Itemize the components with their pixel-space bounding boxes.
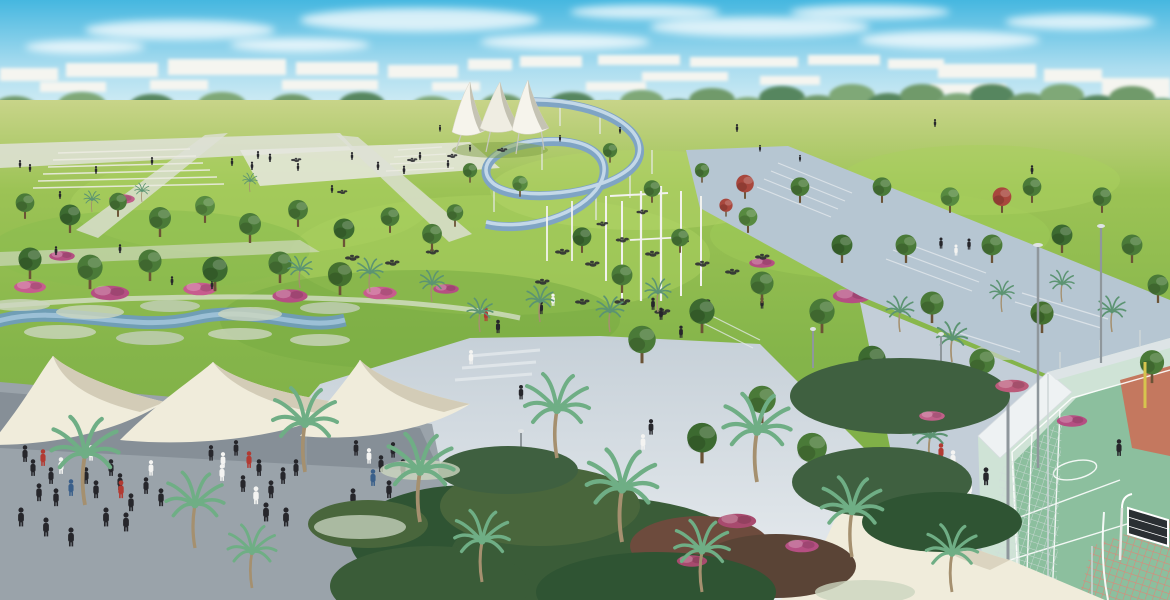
lamp-head	[810, 327, 816, 331]
foreground-flower-shrub	[995, 380, 1029, 393]
distant-building	[598, 55, 680, 65]
cloud	[300, 8, 540, 32]
cloud	[230, 38, 370, 52]
stream	[0, 314, 345, 323]
flower-shrub	[14, 281, 46, 293]
flower-shrub	[363, 287, 397, 300]
foreground-flower-shrub	[785, 540, 819, 553]
cloud	[790, 5, 950, 19]
distant-building	[0, 68, 58, 81]
grass-tuft	[24, 325, 96, 339]
distant-building	[150, 80, 208, 90]
foreground-flower-shrub	[1057, 415, 1087, 426]
lamp-head	[1097, 224, 1105, 228]
foreground-flower-shrub	[919, 411, 945, 421]
cloud	[1005, 14, 1155, 30]
distant-building	[168, 59, 286, 75]
grass-tuft	[300, 302, 360, 314]
distant-building	[888, 59, 944, 69]
distant-building	[388, 65, 458, 78]
distant-building	[1044, 69, 1102, 82]
distant-building	[642, 72, 728, 81]
lamp-head	[938, 332, 944, 336]
distant-building	[66, 63, 158, 77]
cloud	[650, 17, 870, 37]
park-rendering-canvas	[0, 0, 1170, 600]
distant-building	[468, 59, 512, 70]
distant-building	[40, 82, 106, 92]
grass-tuft	[56, 305, 124, 319]
distant-building	[690, 57, 798, 67]
flower-shrub	[91, 286, 129, 300]
foreground-flower-shrub	[718, 514, 756, 528]
grass-tuft	[218, 307, 282, 321]
distant-building	[432, 82, 480, 91]
foreground-grass-tuft	[314, 515, 406, 539]
park-rendering-image	[0, 0, 1170, 600]
distant-building	[808, 55, 880, 65]
cloud	[25, 40, 145, 54]
distant-building	[282, 80, 378, 90]
flower-shrub	[272, 289, 307, 302]
distant-building	[520, 56, 582, 67]
lamp-head	[1033, 243, 1043, 247]
distant-building	[586, 82, 646, 91]
cloud	[860, 31, 1040, 49]
flower-shrub	[433, 284, 459, 294]
grass-tuft	[116, 331, 184, 345]
distant-building	[760, 76, 820, 85]
cloud	[570, 5, 720, 19]
cloud	[480, 34, 650, 50]
grass-tuft	[208, 328, 272, 340]
cloud	[85, 20, 275, 40]
grass-tuft	[140, 300, 200, 312]
grass-tuft	[290, 334, 350, 346]
flower-shrub	[49, 251, 75, 261]
foreground-planting-bed	[790, 358, 1010, 434]
distant-building	[296, 62, 378, 75]
distant-building	[938, 64, 1036, 78]
lamp-head	[518, 429, 524, 433]
